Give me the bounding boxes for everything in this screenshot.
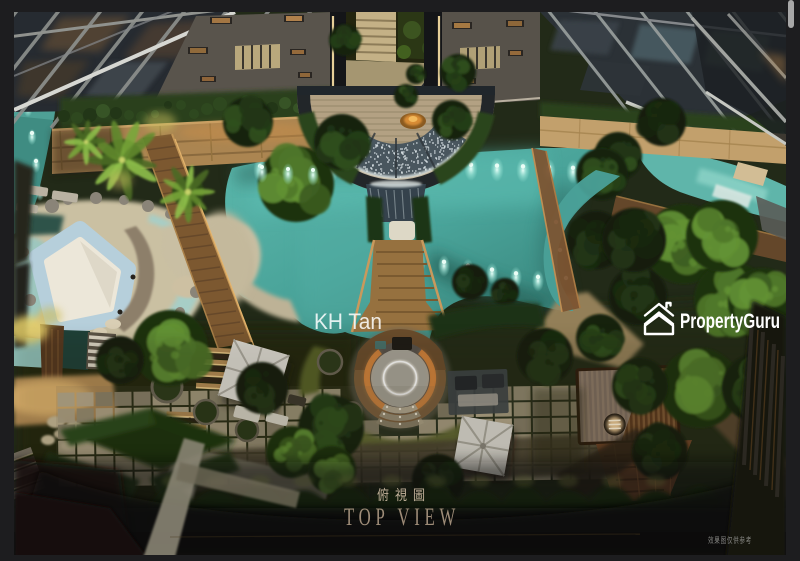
svg-text:俯視圖: 俯視圖 bbox=[377, 488, 431, 504]
svg-text:效果图仅供参考: 效果图仅供参考 bbox=[708, 535, 752, 545]
svg-text:KH Tan: KH Tan bbox=[314, 309, 382, 334]
svg-text:PropertyGuru: PropertyGuru bbox=[680, 310, 780, 333]
svg-text:TOP VIEW: TOP VIEW bbox=[344, 504, 460, 531]
